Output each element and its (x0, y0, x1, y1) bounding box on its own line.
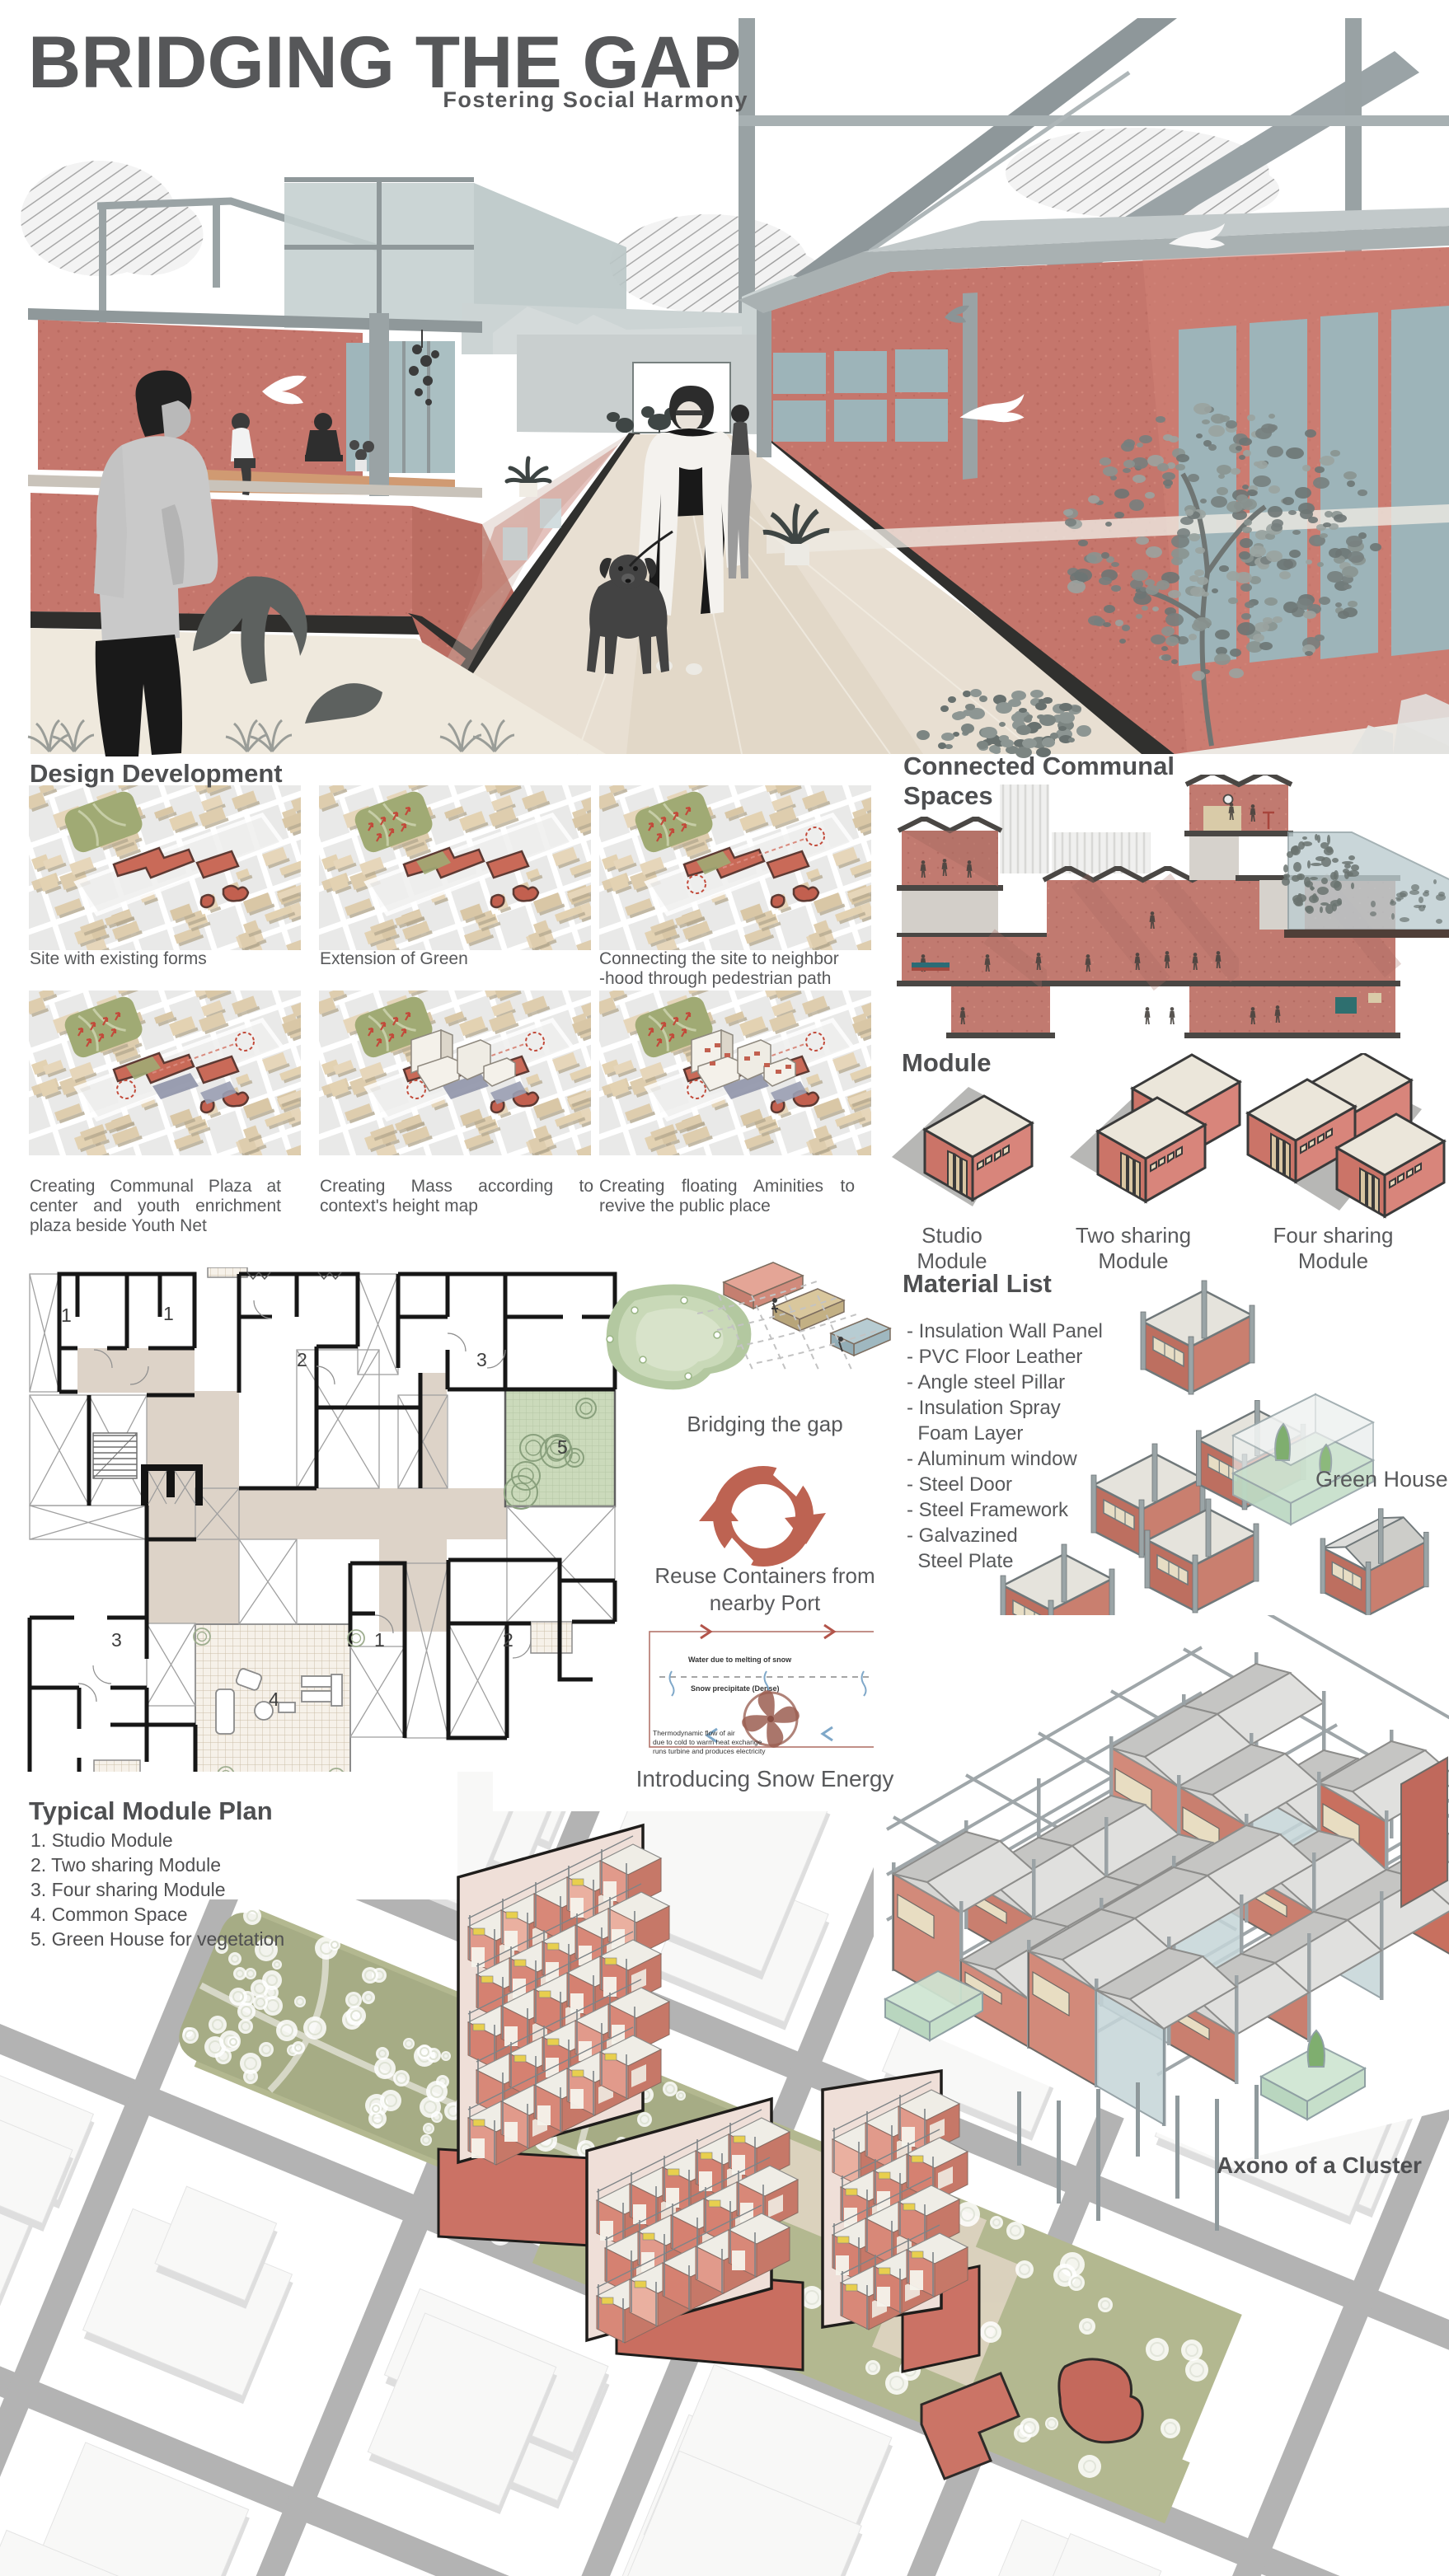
svg-text:Thermodynamic flow of air: Thermodynamic flow of air (653, 1729, 735, 1737)
svg-text:2: 2 (297, 1349, 307, 1370)
svg-text:1: 1 (374, 1629, 385, 1651)
svg-text:runs turbine and produces elec: runs turbine and produces electricity (653, 1747, 766, 1755)
svg-text:1: 1 (61, 1304, 72, 1326)
svg-text:3: 3 (111, 1629, 122, 1651)
svg-text:due to cold to warm heat excha: due to cold to warm heat exchange (653, 1738, 762, 1746)
svg-text:Water due to melting of snow: Water due to melting of snow (688, 1656, 792, 1664)
svg-text:1: 1 (163, 1303, 174, 1324)
svg-text:3: 3 (476, 1349, 487, 1370)
